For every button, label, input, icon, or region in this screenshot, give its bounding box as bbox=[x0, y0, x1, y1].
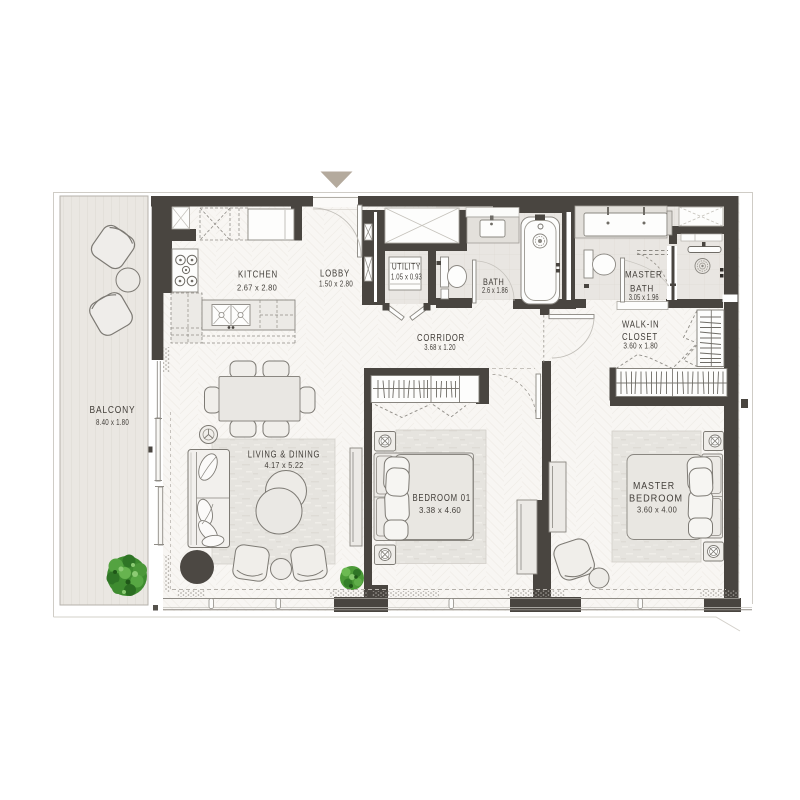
svg-text:BALCONY: BALCONY bbox=[90, 405, 136, 416]
svg-text:BEDROOM 01: BEDROOM 01 bbox=[412, 493, 471, 504]
svg-text:2.67 x 2.80: 2.67 x 2.80 bbox=[237, 283, 277, 293]
svg-text:KITCHEN: KITCHEN bbox=[238, 270, 278, 281]
svg-text:MASTER: MASTER bbox=[633, 481, 675, 492]
svg-text:3.60 x 1.80: 3.60 x 1.80 bbox=[623, 340, 658, 350]
svg-text:3.38 x 4.60: 3.38 x 4.60 bbox=[419, 505, 461, 515]
svg-text:2.6 x 1.86: 2.6 x 1.86 bbox=[482, 286, 508, 295]
svg-text:4.17 x 5.22: 4.17 x 5.22 bbox=[265, 460, 304, 470]
svg-text:WALK-IN: WALK-IN bbox=[622, 319, 660, 330]
svg-text:LIVING & DINING: LIVING & DINING bbox=[248, 450, 321, 461]
svg-text:3.68 x 1.20: 3.68 x 1.20 bbox=[424, 342, 456, 352]
svg-text:8.40 x 1.80: 8.40 x 1.80 bbox=[96, 417, 129, 427]
svg-text:1.50 x 2.80: 1.50 x 2.80 bbox=[319, 279, 353, 289]
svg-text:UTILITY: UTILITY bbox=[392, 261, 421, 271]
svg-text:BEDROOM: BEDROOM bbox=[629, 494, 683, 505]
svg-text:MASTER: MASTER bbox=[625, 269, 663, 279]
svg-text:3.05 x 1.96: 3.05 x 1.96 bbox=[629, 293, 659, 302]
svg-text:3.60 x 4.00: 3.60 x 4.00 bbox=[637, 505, 677, 515]
svg-text:1.05 x 0.93: 1.05 x 0.93 bbox=[391, 273, 422, 282]
